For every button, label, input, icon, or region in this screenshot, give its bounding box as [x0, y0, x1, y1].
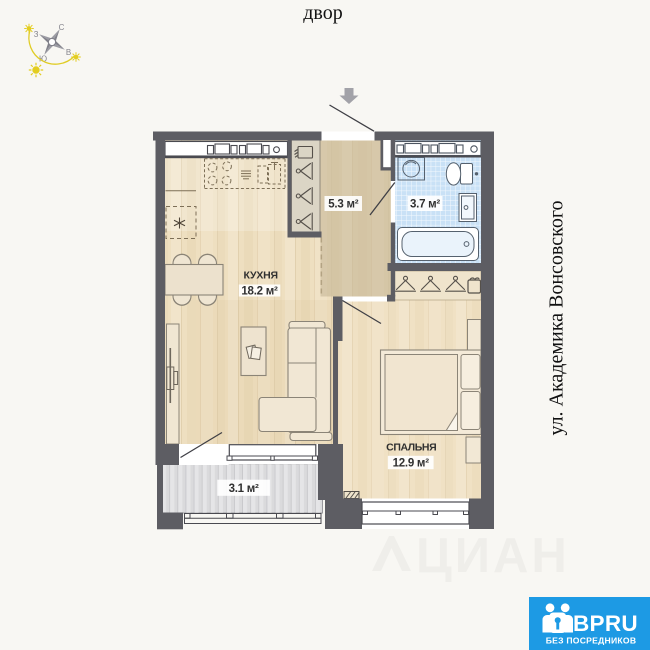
svg-text:В: В — [66, 48, 71, 57]
svg-text:З: З — [34, 30, 39, 39]
svg-text:ул. Академика Вонсовского: ул. Академика Вонсовского — [546, 200, 568, 435]
svg-text:С: С — [59, 23, 65, 32]
svg-text:КУХНЯ: КУХНЯ — [244, 270, 278, 282]
svg-text:ЦИАН: ЦИАН — [416, 529, 570, 583]
svg-text:BPRU: BPRU — [573, 611, 638, 636]
svg-text:3.7 м²: 3.7 м² — [410, 199, 440, 211]
svg-text:СПАЛЬНЯ: СПАЛЬНЯ — [386, 442, 436, 454]
svg-text:12.9 м²: 12.9 м² — [393, 457, 430, 469]
svg-text:двор: двор — [303, 2, 342, 24]
svg-text:3.1 м²: 3.1 м² — [229, 483, 259, 495]
svg-text:БЕЗ ПОСРЕДНИКОВ: БЕЗ ПОСРЕДНИКОВ — [546, 636, 637, 646]
svg-text:18.2 м²: 18.2 м² — [241, 285, 278, 297]
svg-text:5.3 м²: 5.3 м² — [328, 199, 358, 211]
